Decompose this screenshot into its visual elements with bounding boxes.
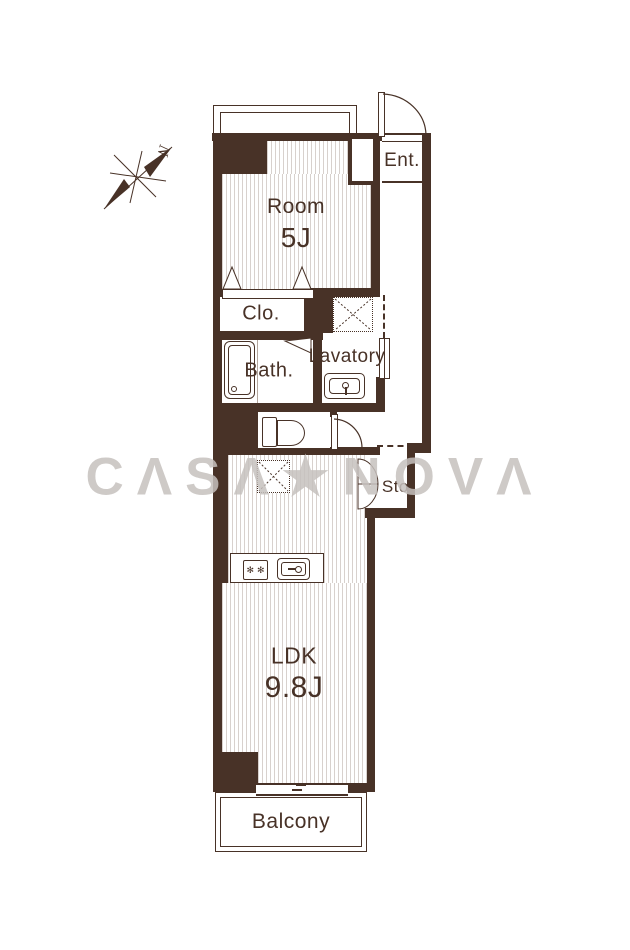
floor-plan: ✻ ✻ N Room 5J Ent. Clo. Bath. Lavatory S	[0, 0, 630, 950]
window-icon	[220, 112, 350, 136]
wall-segment	[348, 783, 375, 792]
toilet-bowl-icon	[277, 420, 305, 446]
wall-segment	[306, 295, 333, 333]
balcony-label: Balcony	[252, 810, 330, 834]
toilet-door-swing-icon	[333, 417, 363, 449]
ldk-name-label: LDK	[271, 643, 317, 670]
bath-label: Bath.	[244, 360, 293, 383]
entrance-door-swing-icon	[380, 92, 428, 136]
casa-nova-watermark: CΛSΛ★NOVΛ	[85, 447, 544, 508]
toilet-icon	[262, 417, 277, 447]
room-floor-hatch	[222, 174, 348, 185]
opening-dashed-line	[383, 295, 385, 338]
wall-segment	[213, 752, 258, 792]
wall-segment	[367, 508, 375, 792]
burner-icon: ✻	[257, 565, 265, 576]
kitchen-counter: ✻ ✻	[230, 553, 324, 583]
stove-icon: ✻ ✻	[243, 560, 268, 580]
kitchen-sink-icon	[277, 558, 310, 580]
wall-segment	[213, 141, 267, 174]
compass-rose-icon: N	[98, 135, 184, 221]
entrance-label: Ent.	[384, 150, 420, 172]
wall-segment	[422, 133, 431, 453]
pipe-space	[352, 139, 373, 181]
closet-door-icon	[223, 267, 242, 290]
room-name-label: Room	[267, 195, 325, 219]
balcony-window-icon	[256, 783, 348, 796]
washer-space-icon	[333, 297, 373, 332]
room-floor-hatch	[267, 141, 350, 174]
closet-label: Clo.	[242, 303, 280, 326]
lavatory-label: Lavatory	[309, 346, 386, 368]
wall-segment	[376, 377, 385, 412]
lavatory-sink-icon	[324, 373, 365, 399]
burner-icon: ✻	[246, 565, 254, 576]
ldk-size-label: 9.8J	[265, 671, 324, 705]
entrance-step-line	[382, 181, 422, 183]
closet-door-icon	[293, 267, 312, 290]
room-size-label: 5J	[281, 222, 312, 254]
closet-door-track	[222, 289, 314, 299]
